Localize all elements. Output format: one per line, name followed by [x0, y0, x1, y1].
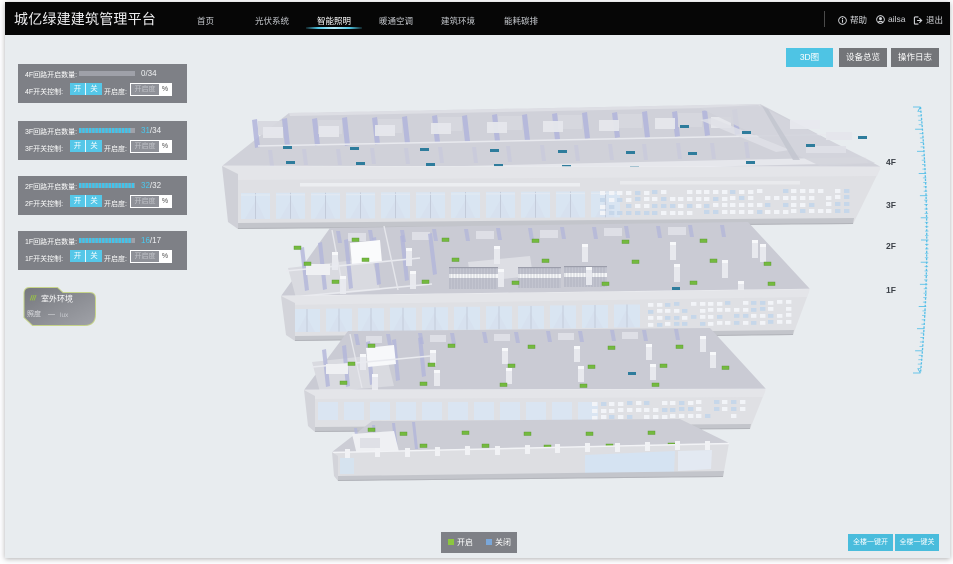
- svg-text:照度: 照度: [27, 309, 41, 318]
- svg-text:室外环境: 室外环境: [41, 294, 73, 304]
- svg-text:—: —: [48, 311, 55, 318]
- svg-text:///: ///: [29, 296, 37, 303]
- svg-text:lux: lux: [60, 312, 69, 319]
